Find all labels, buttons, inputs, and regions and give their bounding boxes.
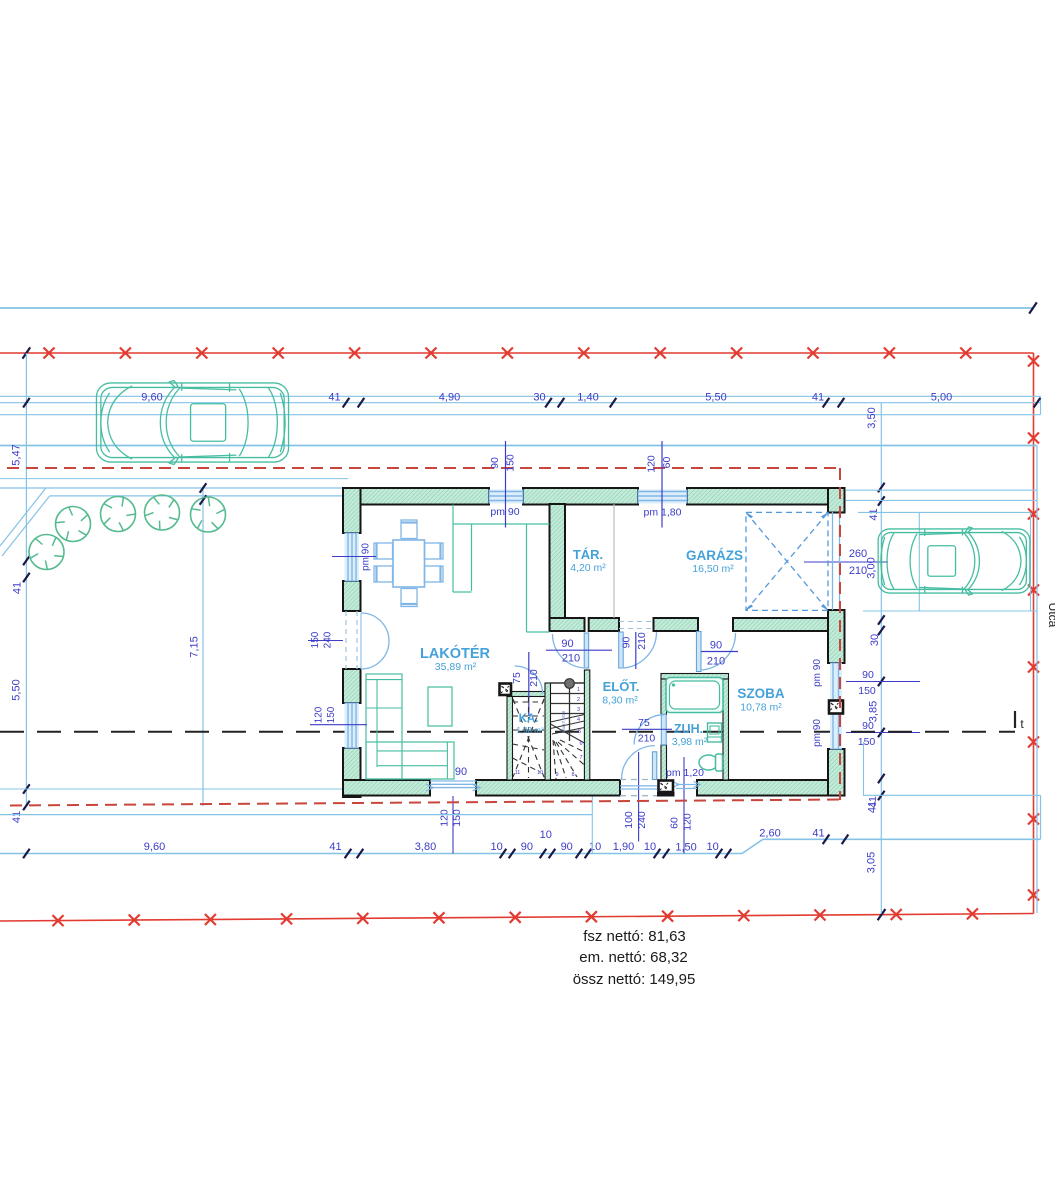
svg-text:1: 1 (577, 687, 580, 693)
svg-text:pm 1,20: pm 1,20 (666, 767, 704, 779)
svg-text:5: 5 (578, 729, 581, 735)
svg-text:41: 41 (328, 392, 340, 404)
svg-text:90: 90 (521, 841, 533, 853)
svg-text:össz nettó: 149,95: össz nettó: 149,95 (573, 971, 696, 988)
svg-text:GARÁZS: GARÁZS (686, 548, 743, 563)
svg-text:3,50: 3,50 (866, 407, 878, 428)
svg-text:10: 10 (540, 829, 552, 841)
svg-text:3,85: 3,85 (868, 701, 880, 722)
svg-text:1,90: 1,90 (613, 841, 634, 853)
svg-text:240: 240 (323, 631, 334, 648)
svg-text:5,47: 5,47 (11, 444, 23, 465)
svg-text:9: 9 (555, 772, 558, 778)
svg-text:100: 100 (623, 811, 635, 829)
svg-text:150: 150 (505, 454, 517, 472)
svg-text:7,15: 7,15 (189, 636, 201, 657)
svg-text:90: 90 (862, 720, 874, 732)
svg-text:210: 210 (562, 653, 580, 665)
svg-text:150: 150 (326, 706, 337, 723)
svg-text:5,50: 5,50 (705, 392, 726, 404)
svg-text:240: 240 (636, 811, 648, 829)
svg-text:260: 260 (849, 548, 867, 560)
svg-text:10: 10 (537, 770, 543, 776)
svg-text:1,98 m²: 1,98 m² (516, 726, 543, 735)
svg-text:3: 3 (577, 707, 580, 713)
svg-text:9,60: 9,60 (144, 841, 165, 853)
svg-text:4: 4 (577, 717, 580, 723)
svg-text:90: 90 (862, 669, 874, 681)
svg-text:210: 210 (638, 733, 656, 745)
svg-text:120: 120 (439, 809, 451, 827)
svg-text:75: 75 (511, 672, 523, 684)
svg-text:120: 120 (682, 813, 694, 831)
svg-text:1,50: 1,50 (675, 842, 696, 854)
svg-text:60: 60 (669, 817, 681, 829)
svg-text:9,60: 9,60 (141, 392, 162, 404)
svg-text:8: 8 (571, 772, 574, 778)
svg-text:4,90: 4,90 (439, 392, 460, 404)
svg-text:10: 10 (490, 841, 502, 853)
svg-text:10: 10 (589, 841, 601, 853)
svg-text:150: 150 (858, 685, 876, 697)
svg-text:16x17,6/28: 16x17,6/28 (561, 710, 566, 733)
svg-text:120: 120 (314, 706, 325, 723)
svg-text:1,40: 1,40 (577, 392, 598, 404)
svg-text:ZUH.: ZUH. (674, 722, 703, 736)
svg-text:3,98 m²: 3,98 m² (672, 736, 708, 748)
svg-text:6: 6 (579, 741, 582, 747)
svg-text:90: 90 (710, 639, 722, 651)
svg-text:90: 90 (455, 766, 467, 778)
svg-text:7: 7 (579, 755, 582, 761)
svg-text:fsz nettó: 81,63: fsz nettó: 81,63 (583, 928, 686, 945)
svg-text:5,00: 5,00 (931, 392, 952, 404)
svg-text:41: 41 (812, 828, 824, 840)
svg-text:41: 41 (812, 392, 824, 404)
svg-text:10: 10 (644, 841, 656, 853)
svg-text:3,80: 3,80 (415, 841, 436, 853)
svg-text:5,50: 5,50 (11, 679, 23, 700)
svg-text:90: 90 (621, 637, 633, 649)
svg-text:10,78 m²: 10,78 m² (740, 702, 782, 714)
svg-text:KA.: KA. (519, 713, 539, 725)
svg-text:2,60: 2,60 (759, 828, 780, 840)
svg-text:LAKÓTÉR: LAKÓTÉR (420, 644, 491, 662)
svg-text:41: 41 (867, 796, 879, 808)
svg-text:Utca: Utca (1046, 603, 1055, 628)
svg-text:41: 41 (12, 582, 24, 594)
svg-text:3,05: 3,05 (866, 852, 878, 873)
svg-text:41: 41 (329, 841, 341, 853)
svg-text:210: 210 (707, 656, 725, 668)
svg-text:90: 90 (561, 638, 573, 650)
svg-text:150: 150 (858, 736, 876, 748)
svg-text:210: 210 (636, 632, 648, 650)
svg-text:2: 2 (577, 697, 580, 703)
svg-text:ELŐT.: ELŐT. (603, 679, 640, 694)
svg-text:SZOBA: SZOBA (737, 686, 785, 701)
svg-text:150: 150 (310, 631, 321, 648)
svg-text:35,89 m²: 35,89 m² (435, 661, 477, 673)
svg-text:90: 90 (489, 457, 501, 469)
svg-text:pm 90: pm 90 (812, 659, 823, 687)
svg-text:41: 41 (868, 508, 880, 520)
svg-text:210: 210 (849, 565, 867, 577)
svg-text:60: 60 (661, 457, 673, 469)
svg-text:3,00: 3,00 (866, 557, 878, 578)
svg-text:11: 11 (515, 770, 521, 776)
svg-text:10: 10 (706, 841, 718, 853)
svg-text:em. nettó: 68,32: em. nettó: 68,32 (579, 949, 687, 966)
svg-text:TÁR.: TÁR. (573, 547, 603, 562)
svg-text:30: 30 (533, 392, 545, 404)
svg-text:8,30 m²: 8,30 m² (602, 695, 638, 707)
svg-text:41: 41 (11, 811, 23, 823)
svg-text:210: 210 (528, 669, 540, 687)
svg-text:30: 30 (869, 634, 881, 646)
svg-text:150: 150 (451, 809, 463, 827)
svg-text:120: 120 (646, 455, 658, 473)
svg-text:90: 90 (561, 841, 573, 853)
svg-text:75: 75 (638, 717, 650, 729)
svg-text:4,20 m²: 4,20 m² (570, 562, 606, 574)
svg-text:16,50 m²: 16,50 m² (692, 563, 734, 575)
